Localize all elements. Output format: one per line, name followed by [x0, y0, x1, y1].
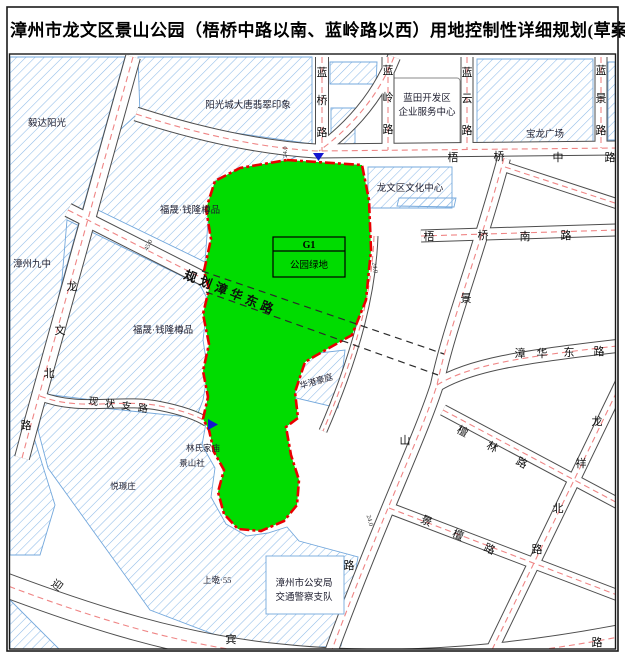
place-baolong: 宝龙广场: [526, 128, 564, 140]
svg-text:路: 路: [594, 345, 605, 358]
width-annotation: 24.0: [282, 146, 289, 157]
road-label-jingshan: 景: [461, 292, 472, 305]
road-label-lanjing: 蓝: [596, 64, 607, 77]
parcel: [608, 62, 615, 140]
svg-text:南: 南: [520, 230, 531, 243]
svg-text:路: 路: [592, 636, 603, 649]
svg-text:中: 中: [553, 151, 564, 164]
svg-text:祥: 祥: [576, 456, 587, 470]
svg-text:文: 文: [55, 323, 66, 337]
svg-text:云: 云: [462, 93, 473, 105]
place-lin-temple: 林氏家庙: [186, 443, 221, 453]
svg-text:岭: 岭: [383, 90, 394, 104]
road-label-lanyun: 蓝: [462, 66, 473, 79]
road-label-longwen-north: 龙: [67, 280, 78, 293]
g1-parcel-label-box: G1 公园绿地: [273, 237, 345, 277]
svg-text:路: 路: [532, 543, 543, 556]
svg-text:路: 路: [21, 419, 32, 432]
svg-text:路: 路: [462, 124, 473, 137]
svg-text:山: 山: [400, 434, 411, 447]
parcel: [330, 62, 377, 84]
road-label-lanqiao: 蓝: [317, 66, 328, 79]
svg-text:交通警察支队: 交通警察支队: [275, 591, 333, 603]
planning-map-page: 漳州市龙文区景山公园（梧桥中路以南、蓝岭路以西）用地控制性详细规划(草案): [0, 0, 625, 658]
svg-text:路: 路: [605, 151, 616, 164]
road-label-wuqiao-south: 梧: [424, 229, 435, 243]
svg-text:路: 路: [561, 229, 572, 242]
place-jingshan-she: 景山社: [179, 458, 205, 468]
road-label-wuqiao-mid: 梧: [448, 150, 459, 164]
park-polygon: [203, 160, 371, 531]
svg-text:宾: 宾: [226, 632, 237, 646]
place-lantian: 蓝田开发区: [403, 92, 451, 104]
place-school: 漳州九中: [13, 258, 51, 270]
svg-text:华: 华: [537, 346, 548, 360]
place-sunshine: 阳光城大唐翡翠印象: [205, 99, 291, 111]
svg-text:企业服务中心: 企业服务中心: [398, 106, 456, 118]
place-yuejing: 悦璟庄: [110, 481, 136, 491]
road-label-longxiang-north: 龙: [592, 415, 603, 428]
place-fusheng-b: 福晟·钱隆樽品: [133, 324, 193, 336]
road-label-zhanghua-east: 漳: [515, 346, 526, 360]
place-police: 漳州市公安局: [275, 577, 332, 589]
svg-text:路: 路: [317, 126, 328, 139]
place-shangqian: 上墘·55: [203, 575, 231, 585]
svg-text:北: 北: [44, 367, 55, 380]
parcel: [397, 198, 456, 207]
road-label-jingtan: 景檀路: [419, 512, 498, 557]
place-culture-center: 龙文区文化中心: [377, 182, 444, 194]
svg-text:桥: 桥: [478, 229, 489, 242]
place-fusheng-a: 福晟·钱隆樽品: [160, 204, 220, 216]
svg-text:路: 路: [344, 559, 355, 572]
width-annotation: 24.0: [365, 514, 375, 527]
park-code: G1: [303, 240, 316, 251]
svg-text:北: 北: [553, 502, 564, 515]
planning-map: G1 公园绿地 蓝 桥 路 蓝 岭 路 蓝 云 路 蓝 景 路 梧 桥: [0, 0, 625, 658]
svg-text:景: 景: [596, 92, 607, 105]
park-use-label: 公园绿地: [290, 259, 329, 271]
svg-text:路: 路: [383, 123, 394, 136]
road-label-lanling: 蓝: [383, 64, 394, 77]
svg-text:桥: 桥: [317, 94, 328, 107]
svg-text:东: 东: [564, 346, 575, 359]
place-yida: 毅达阳光: [28, 117, 67, 129]
svg-text:桥: 桥: [494, 150, 505, 163]
svg-text:路: 路: [596, 124, 607, 137]
